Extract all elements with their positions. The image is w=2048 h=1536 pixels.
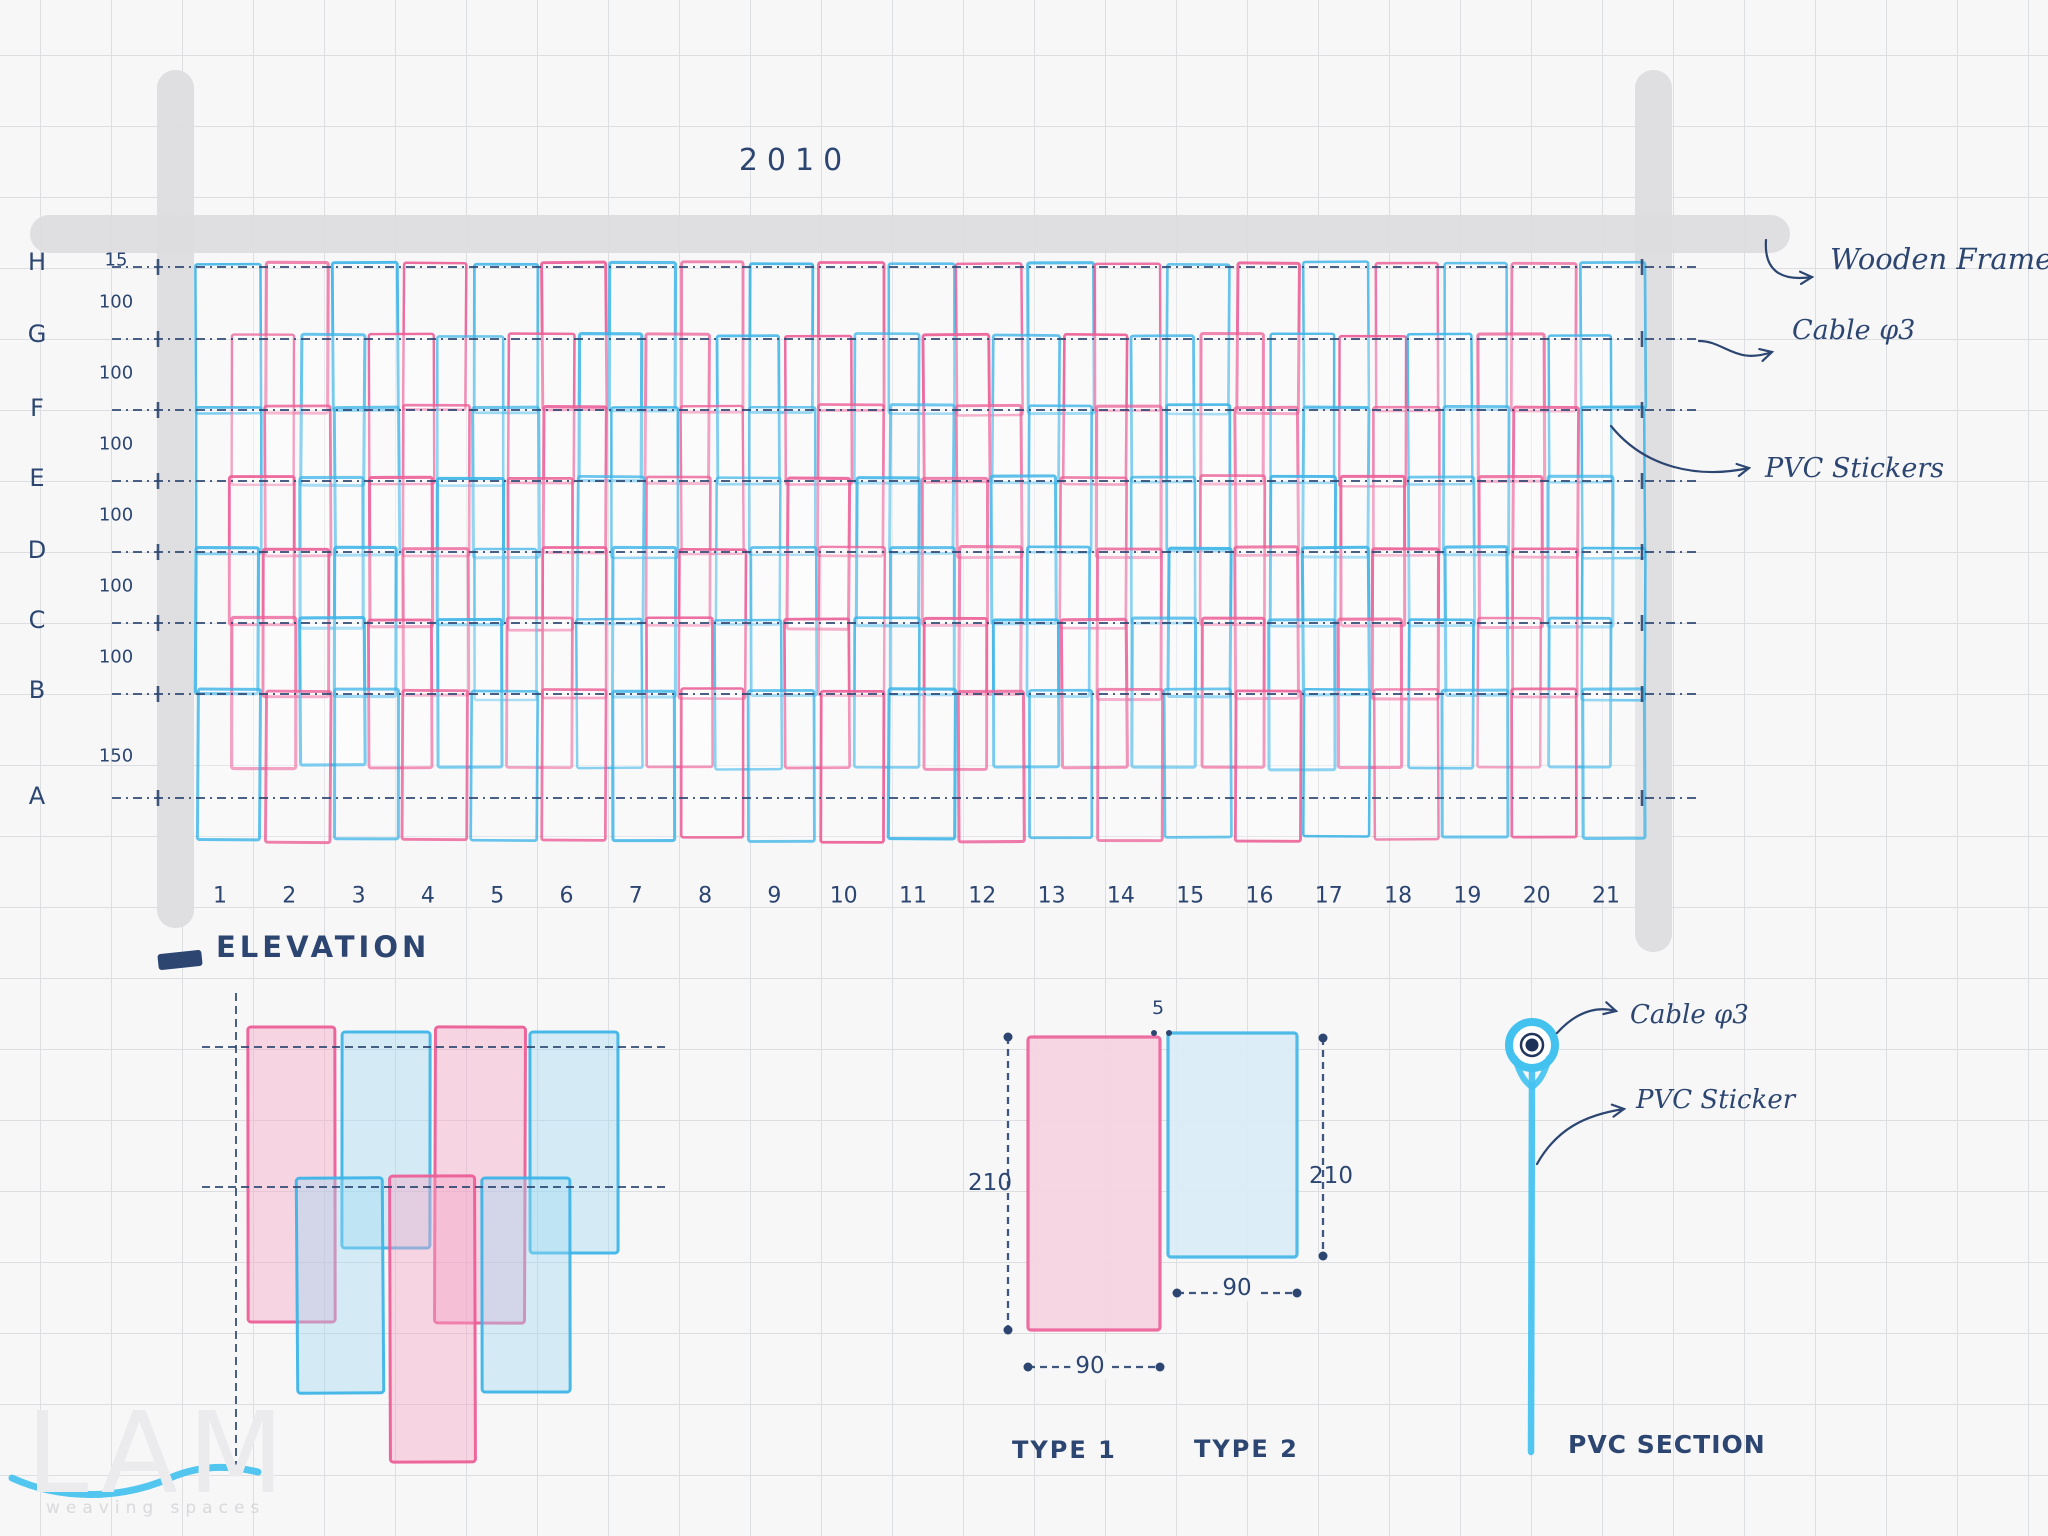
column-number-5: 5 (490, 883, 504, 908)
row-spacing-dim: 100 (99, 577, 133, 598)
column-number-17: 17 (1315, 883, 1343, 908)
row-spacing-dim: 100 (99, 435, 133, 456)
row-label-E: E (29, 465, 44, 493)
column-number-4: 4 (421, 883, 435, 908)
row-spacing-dim: 100 (99, 506, 133, 527)
row-label-G: G (28, 321, 47, 349)
blueprint-sheet: 2010HGFEDCBA1510010010010010010015012345… (0, 0, 2048, 1536)
type2-label: TYPE 2 (1194, 1436, 1299, 1464)
row-label-A: A (29, 783, 45, 811)
row-spacing-dim: 100 (99, 293, 133, 314)
column-number-9: 9 (767, 883, 781, 908)
pvc-section-detail (1509, 1022, 1555, 1452)
row-label-D: D (28, 537, 46, 565)
row-spacing-dim: 100 (99, 648, 133, 669)
column-number-7: 7 (629, 883, 643, 908)
column-number-11: 11 (899, 883, 927, 908)
cable-callout-top: Cable φ3 (1792, 315, 1915, 346)
logo-tagline: weaving spaces (46, 1499, 265, 1519)
row-label-H: H (28, 249, 46, 277)
section-cable-callout: Cable φ3 (1630, 1001, 1749, 1031)
column-number-8: 8 (698, 883, 712, 908)
elevation-title: ELEVATION (216, 931, 430, 964)
type1-width-dim: 90 (1070, 1353, 1109, 1379)
column-number-14: 14 (1107, 883, 1135, 908)
column-number-2: 2 (282, 883, 296, 908)
row-spacing-dim: 15 (105, 251, 128, 272)
row-label-B: B (29, 677, 45, 705)
blueprint-drawing (0, 0, 2048, 1536)
type2-height-dim: 210 (1309, 1163, 1353, 1189)
column-number-12: 12 (968, 883, 996, 908)
row-spacing-dim: 100 (99, 364, 133, 385)
column-number-18: 18 (1384, 883, 1412, 908)
column-number-21: 21 (1592, 883, 1620, 908)
logo-name: LAM (26, 1398, 294, 1510)
overall-width-dimension: 2010 (739, 144, 851, 179)
type-detail (1004, 1030, 1328, 1372)
row-label-C: C (29, 607, 46, 635)
column-number-15: 15 (1176, 883, 1204, 908)
type2-width-dim: 90 (1217, 1275, 1256, 1301)
section-sticker-callout: PVC Sticker (1636, 1086, 1795, 1116)
column-number-1: 1 (213, 883, 227, 908)
row-label-F: F (30, 395, 44, 423)
column-number-6: 6 (560, 883, 574, 908)
column-number-16: 16 (1246, 883, 1274, 908)
wooden-frame-callout: Wooden Frame (1830, 243, 2048, 276)
pvc-section-title: PVC SECTION (1568, 1431, 1766, 1460)
pvc-stickers-callout: PVC Stickers (1765, 453, 1944, 484)
column-number-3: 3 (352, 883, 366, 908)
type-gap-dim: 5 (1152, 998, 1164, 1020)
column-number-19: 19 (1453, 883, 1481, 908)
column-number-10: 10 (830, 883, 858, 908)
column-number-13: 13 (1038, 883, 1066, 908)
row-spacing-dim: 150 (99, 747, 133, 768)
type1-height-dim: 210 (968, 1170, 1012, 1196)
type1-label: TYPE 1 (1012, 1437, 1117, 1465)
column-number-20: 20 (1523, 883, 1551, 908)
